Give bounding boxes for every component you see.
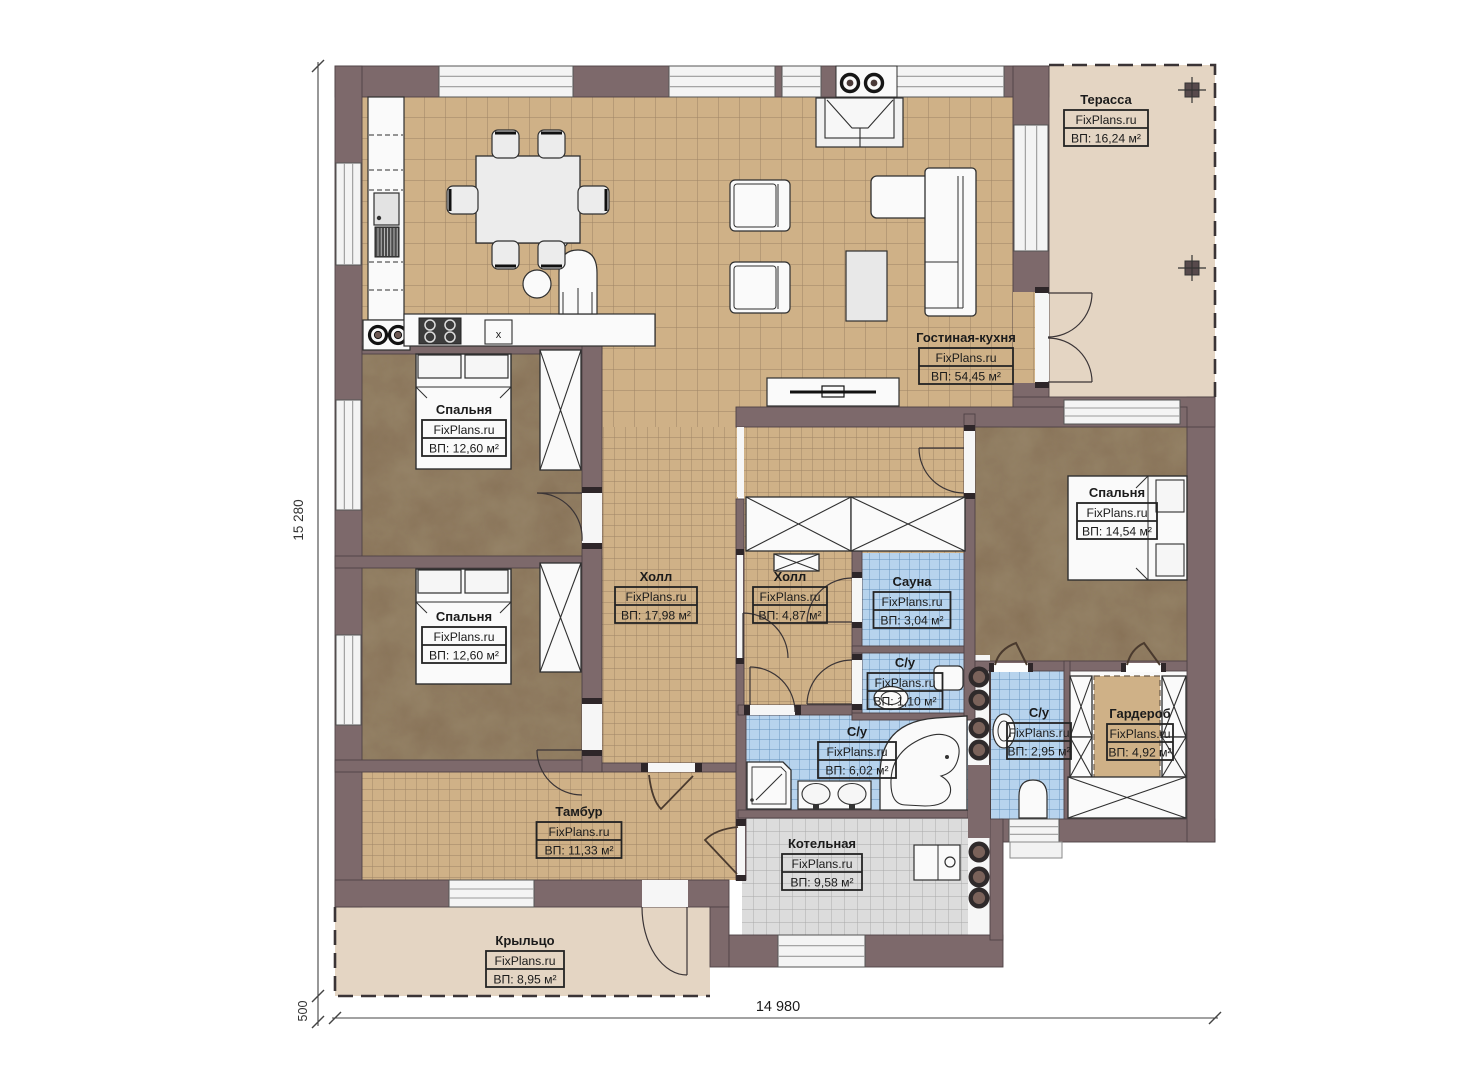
svg-text:ВП: 14,54 м²: ВП: 14,54 м² (1082, 525, 1152, 539)
svg-text:ВП: 1,10 м²: ВП: 1,10 м² (873, 695, 936, 709)
svg-text:FixPlans.ru: FixPlans.ru (875, 676, 936, 690)
svg-text:С/у: С/у (1029, 705, 1050, 720)
svg-text:FixPlans.ru: FixPlans.ru (792, 857, 853, 871)
svg-text:14 980: 14 980 (756, 999, 800, 1015)
svg-text:Холл: Холл (774, 569, 807, 584)
svg-text:15 280: 15 280 (291, 499, 306, 540)
svg-text:Гостиная-кухня: Гостиная-кухня (916, 330, 1016, 345)
svg-text:ВП: 2,95 м²: ВП: 2,95 м² (1007, 745, 1070, 759)
svg-text:FixPlans.ru: FixPlans.ru (1110, 727, 1171, 741)
svg-text:FixPlans.ru: FixPlans.ru (936, 351, 997, 365)
svg-text:FixPlans.ru: FixPlans.ru (626, 590, 687, 604)
svg-text:ВП: 3,04 м²: ВП: 3,04 м² (880, 614, 943, 628)
svg-text:ВП: 16,24 м²: ВП: 16,24 м² (1071, 132, 1141, 146)
svg-text:ВП: 11,33 м²: ВП: 11,33 м² (544, 844, 613, 858)
svg-text:ВП: 54,45 м²: ВП: 54,45 м² (931, 370, 1001, 384)
svg-text:FixPlans.ru: FixPlans.ru (760, 590, 821, 604)
svg-text:ВП: 6,02 м²: ВП: 6,02 м² (825, 764, 888, 778)
svg-text:FixPlans.ru: FixPlans.ru (1009, 726, 1070, 740)
svg-text:FixPlans.ru: FixPlans.ru (495, 954, 556, 968)
svg-text:Терасса: Терасса (1080, 92, 1132, 107)
svg-text:С/у: С/у (895, 655, 916, 670)
svg-text:Сауна: Сауна (892, 574, 932, 589)
svg-text:ВП: 4,87 м²: ВП: 4,87 м² (758, 609, 821, 623)
svg-text:FixPlans.ru: FixPlans.ru (1076, 113, 1137, 127)
svg-text:Спальня: Спальня (1089, 485, 1145, 500)
svg-text:ВП: 17,98 м²: ВП: 17,98 м² (621, 609, 691, 623)
svg-text:FixPlans.ru: FixPlans.ru (882, 595, 943, 609)
svg-text:Тамбур: Тамбур (555, 804, 602, 819)
svg-text:ВП: 12,60 м²: ВП: 12,60 м² (429, 442, 499, 456)
svg-text:FixPlans.ru: FixPlans.ru (1087, 506, 1148, 520)
svg-text:Гардероб: Гардероб (1109, 706, 1170, 721)
svg-text:FixPlans.ru: FixPlans.ru (434, 423, 495, 437)
svg-text:FixPlans.ru: FixPlans.ru (827, 745, 888, 759)
svg-text:Спальня: Спальня (436, 609, 492, 624)
svg-text:ВП: 9,58 м²: ВП: 9,58 м² (790, 876, 853, 890)
svg-text:ВП: 8,95 м²: ВП: 8,95 м² (493, 973, 556, 987)
svg-text:С/у: С/у (847, 724, 868, 739)
svg-text:500: 500 (296, 1001, 310, 1022)
svg-text:Крыльцо: Крыльцо (495, 933, 554, 948)
svg-text:Котельная: Котельная (788, 836, 856, 851)
svg-text:ВП: 4,92 м²: ВП: 4,92 м² (1108, 746, 1171, 760)
svg-text:Холл: Холл (640, 569, 673, 584)
svg-text:FixPlans.ru: FixPlans.ru (549, 825, 610, 839)
svg-text:FixPlans.ru: FixPlans.ru (434, 630, 495, 644)
svg-text:x: x (496, 329, 502, 341)
svg-text:ВП: 12,60 м²: ВП: 12,60 м² (429, 649, 499, 663)
svg-text:Спальня: Спальня (436, 402, 492, 417)
